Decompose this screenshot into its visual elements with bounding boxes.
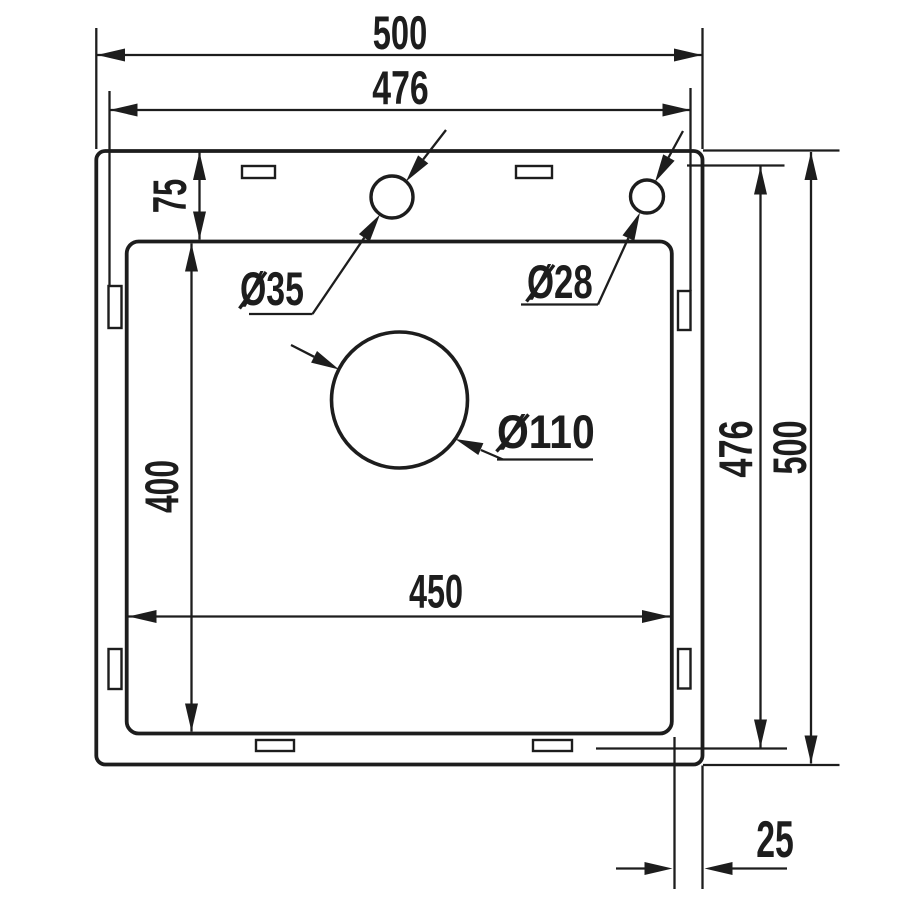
svg-text:450: 450 — [409, 564, 463, 618]
svg-text:400: 400 — [137, 460, 189, 513]
svg-text:476: 476 — [710, 420, 763, 477]
svg-text:500: 500 — [373, 6, 428, 59]
svg-text:75: 75 — [145, 179, 197, 213]
svg-text:476: 476 — [372, 62, 428, 115]
svg-text:Ø28: Ø28 — [527, 256, 593, 308]
svg-text:500: 500 — [763, 420, 817, 474]
svg-text:25: 25 — [756, 811, 794, 869]
svg-text:Ø35: Ø35 — [240, 263, 304, 316]
